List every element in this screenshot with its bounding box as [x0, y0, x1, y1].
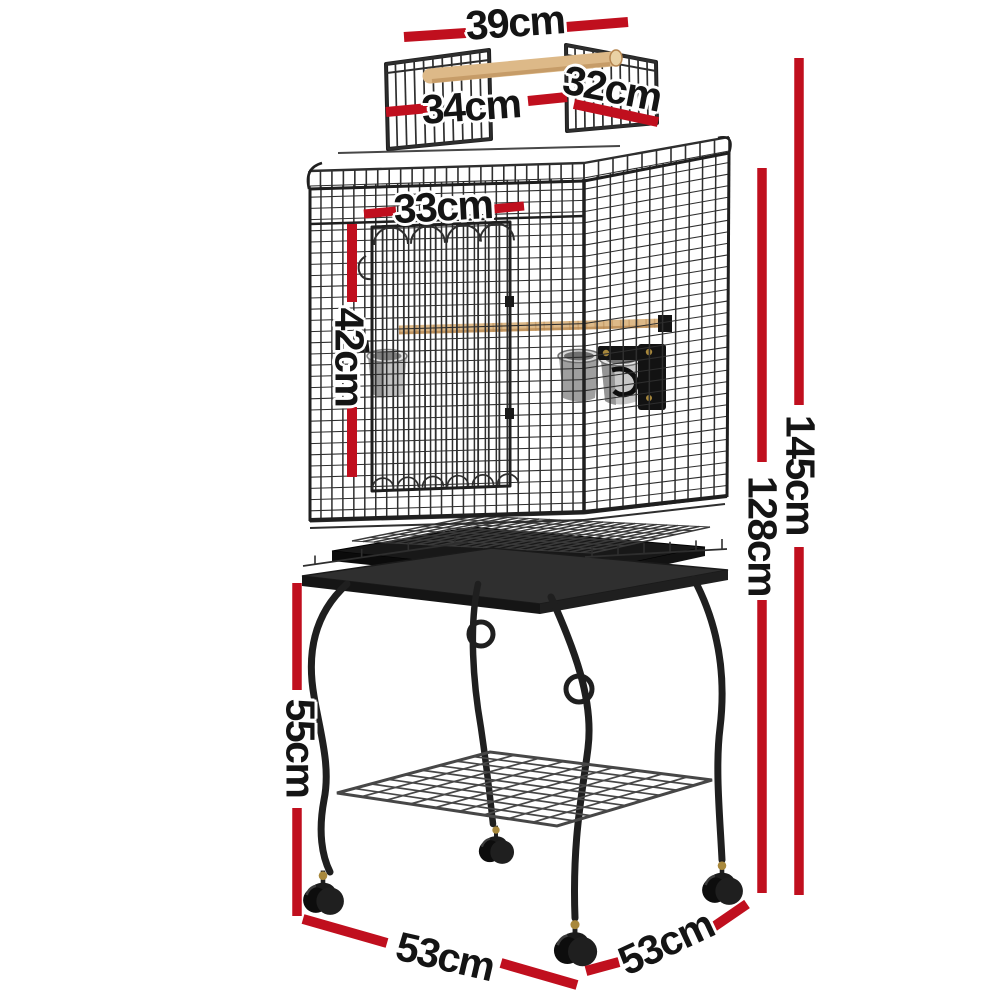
stand — [302, 536, 743, 967]
dimension-label-stand-height: 55cm — [277, 699, 324, 798]
interior-perch — [399, 315, 672, 333]
caster-wheel — [303, 871, 344, 915]
caster-wheel — [479, 826, 514, 864]
cage-interior — [332, 315, 710, 586]
dimension-label-height-to-cage-top: 128cm — [739, 476, 786, 596]
dimension-label-cage-body-height: 42cm — [326, 308, 373, 407]
product-dimension-diagram: 39cm 34cm 32cm 33cm 42cm 145cm 128cm 55c… — [0, 0, 1000, 1000]
caster-wheel — [554, 919, 597, 966]
stand-shelf — [337, 752, 712, 826]
bird-cage-illustration — [0, 0, 1000, 1000]
stand-legs — [311, 579, 722, 918]
caster-wheel — [702, 861, 743, 905]
cage-side-mesh — [584, 151, 729, 514]
dimension-label-upper-front-width: 33cm — [392, 181, 493, 233]
dimension-label-top-span: 39cm — [464, 0, 566, 50]
dimension-label-roof-panel-front: 34cm — [420, 80, 522, 134]
